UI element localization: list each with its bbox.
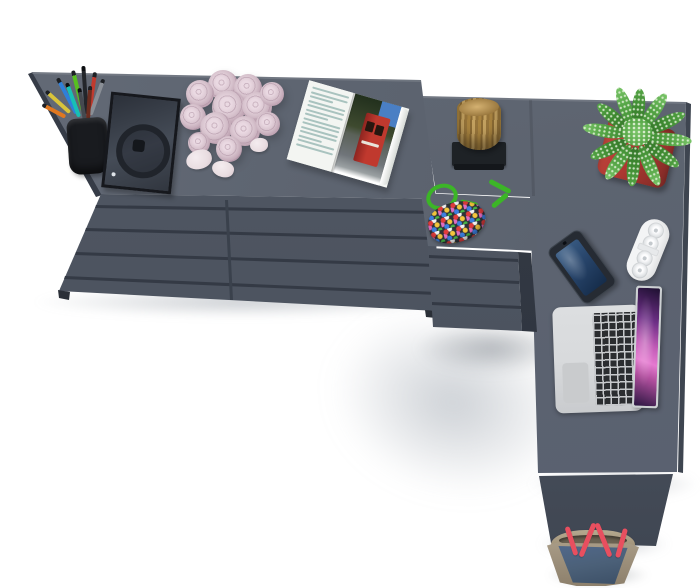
bead-pouch: [426, 184, 518, 246]
bus-window: [365, 121, 375, 133]
frame-photo-logo-dot: [111, 172, 115, 176]
laptop-wallpaper: [634, 288, 660, 407]
plant-center: [622, 118, 652, 146]
bus-window: [374, 125, 384, 137]
rose: [256, 112, 280, 136]
stump-stand-front: [454, 164, 504, 170]
laptop-trackpad: [562, 362, 589, 403]
tote-bag: [545, 522, 641, 588]
photo-red-bus: [353, 112, 391, 167]
wooden-stump-decor: [450, 98, 508, 174]
wooden-stump: [457, 98, 501, 150]
photo-frame: [101, 92, 181, 195]
laptop-base: [552, 304, 644, 413]
rose: [260, 82, 284, 106]
cord-tail: [491, 192, 510, 209]
rose: [216, 136, 242, 162]
bus-sign: [361, 140, 379, 148]
product-photo-l-desk: [0, 0, 700, 588]
laptop-screen: [632, 286, 662, 409]
laptop: [554, 284, 662, 416]
frame-photo-hub: [132, 139, 145, 152]
potted-plant: [578, 80, 694, 192]
stump-top-rings: [458, 98, 499, 118]
